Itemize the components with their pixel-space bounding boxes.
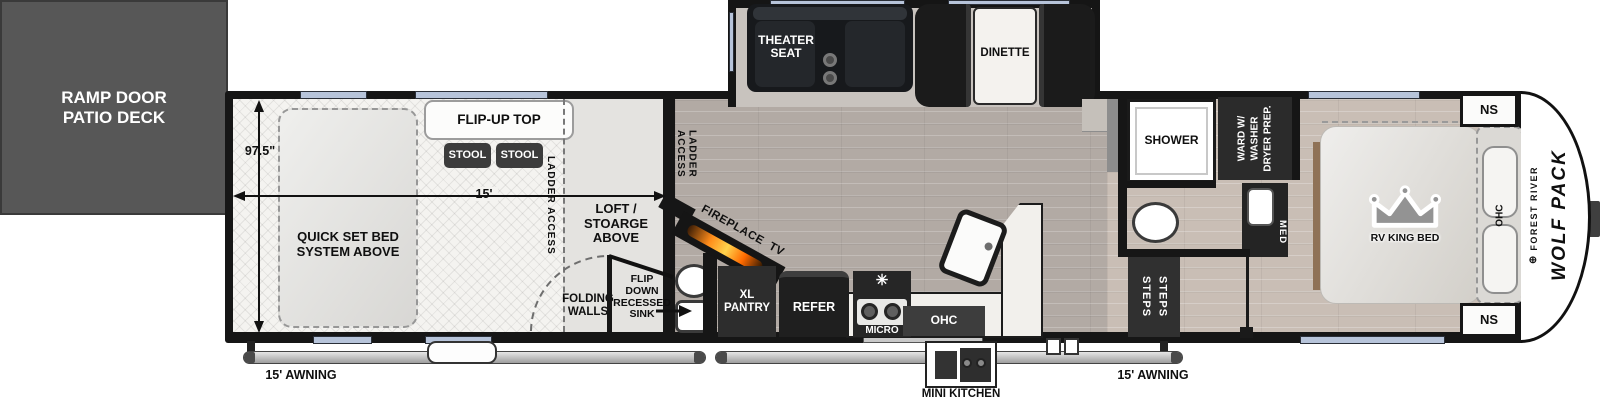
flip-up-top-label: FLIP-UP TOP [457, 112, 541, 127]
crown-icon [1366, 183, 1444, 233]
dim-width-label: 97.5" [240, 144, 280, 158]
floorplan-canvas: RAMP DOOR PATIO DECK QUICK SET BED SYSTE… [0, 0, 1600, 402]
flip-down-sink-label: FLIP DOWN RECESSED SINK [612, 274, 672, 321]
cupholder-icon-1 [823, 53, 837, 67]
bath-wall-ward-right [1292, 97, 1300, 180]
loft-storage-label: LOFT / STOARGE ABOVE [566, 202, 666, 246]
quick-set-bed-outline [278, 108, 418, 328]
brand-wolf-pack: WOLF PACK [1549, 110, 1571, 320]
cupholder-icon-2 [823, 71, 837, 85]
awning-right-label: 15' AWNING [1098, 368, 1208, 382]
stool-1-label: STOOL [449, 149, 487, 161]
mini-kitchen-label: MINI KITCHEN [915, 388, 1007, 401]
bath-wall-bottom [1118, 249, 1250, 257]
ns-top-label: NS [1480, 103, 1498, 118]
awning-left-cap-a [244, 352, 255, 363]
grill-burner-icon-1 [962, 358, 972, 368]
med-cabinet-unit: MED [1242, 183, 1288, 257]
shower-pan: SHOWER [1135, 107, 1208, 175]
bedroom-door-pivot [1240, 327, 1253, 338]
cooktop-panel [857, 299, 907, 325]
steps-label-1: STEPS [1140, 276, 1152, 317]
stool-1: STOOL [444, 143, 491, 168]
ns-bottom-label: NS [1480, 313, 1498, 328]
ohc-kitchen: OHC [903, 306, 985, 336]
slideout-window-side [729, 12, 734, 72]
bedroom-door-line [1246, 257, 1249, 332]
window-garage-top-1 [300, 91, 367, 99]
brand-top-label: FOREST RIVER [1529, 166, 1539, 251]
xl-pantry-label: XL PANTRY [724, 289, 770, 315]
grill-burner-icon-2 [976, 358, 986, 368]
window-garage-top-2 [415, 91, 548, 99]
dim-length-label: 15' [470, 187, 498, 201]
awning-left-label: 15' AWNING [246, 368, 356, 382]
brand-forest-river: ⊕ FOREST RIVER [1526, 140, 1542, 290]
bed-dashed-line [1322, 121, 1478, 123]
burner-icon-2 [884, 303, 901, 320]
garage-bath-wall [703, 253, 717, 338]
dinette-table: DINETTE [973, 7, 1037, 105]
ward-label: WARD W/ WASHER DRYER PREP. [1236, 102, 1275, 176]
dinette-bench-right [1039, 4, 1095, 107]
bath-pocket-door [1107, 99, 1118, 172]
med-label: MED [1276, 211, 1287, 253]
awning-left-cap-b [694, 352, 705, 363]
forest-river-logo-icon: ⊕ [1528, 256, 1539, 264]
dinette-bench-left [915, 4, 971, 107]
entry-step-2 [1064, 338, 1079, 355]
bath-sink-icon [1247, 188, 1274, 226]
burner-starburst-icon: ✳ [853, 273, 911, 290]
flip-up-top: FLIP-UP TOP [424, 100, 574, 140]
entry-step-1 [1046, 338, 1061, 355]
mini-kitchen-sink-icon [935, 351, 957, 379]
cargo-door [427, 341, 497, 364]
awning-right-cap-a [716, 352, 727, 363]
kitchen-counter-return [1001, 203, 1043, 338]
window-bedroom-bottom [1300, 336, 1445, 344]
theater-seat: THEATER SEAT [747, 4, 913, 92]
stool-2: STOOL [496, 143, 543, 168]
shower: SHOWER [1127, 99, 1216, 183]
ramp-deck-label: RAMP DOOR PATIO DECK [61, 88, 166, 126]
quick-set-bed-label: QUICK SET BED SYSTEM ABOVE [284, 230, 412, 259]
bath-wall-left [1118, 99, 1127, 251]
awning-right-cap-b [1171, 352, 1182, 363]
refer-label: REFER [793, 300, 835, 314]
nightstand-top: NS [1460, 93, 1518, 127]
rv-king-bed-label: RV KING BED [1346, 233, 1464, 245]
ladder-access-salon-label: LADDER ACCESS [675, 108, 697, 200]
brand-main-label: WOLF PACK [1549, 149, 1570, 281]
steps-label-2: STEPS [1156, 276, 1168, 317]
window-bedroom-top [1308, 91, 1420, 99]
theater-cushion-right [845, 21, 905, 87]
dinette-label: DINETTE [975, 47, 1035, 60]
bed-ohc-label: OHC [1494, 205, 1505, 227]
shower-label: SHOWER [1145, 134, 1199, 147]
refrigerator: REFER [779, 271, 849, 337]
nightstand-bottom: NS [1460, 303, 1518, 337]
ramp-door-patio-deck: RAMP DOOR PATIO DECK [0, 0, 228, 215]
ladder-access-garage-label: LADDER ACCESS [545, 150, 556, 260]
xl-pantry: XL PANTRY [718, 266, 776, 337]
theater-seat-back [753, 7, 907, 20]
mini-kitchen-unit [925, 341, 997, 388]
mini-kitchen-grill-icon [960, 348, 991, 382]
window-garage-bottom-1 [313, 336, 372, 344]
ohc-kitchen-label: OHC [931, 314, 958, 327]
faucet-icon [983, 241, 993, 251]
bath-toilet-icon [1132, 202, 1179, 243]
bedroom-steps: STEPS STEPS [1128, 257, 1180, 337]
theater-seat-label: THEATER SEAT [751, 34, 821, 61]
wardrobe-washer-dryer: WARD W/ WASHER DRYER PREP. [1218, 97, 1292, 180]
burner-icon-1 [861, 303, 878, 320]
bath-wall-shower-bottom [1118, 181, 1216, 188]
bed-ohc-label-wrap: OHC [1488, 196, 1512, 236]
stool-2-label: STOOL [501, 149, 539, 161]
